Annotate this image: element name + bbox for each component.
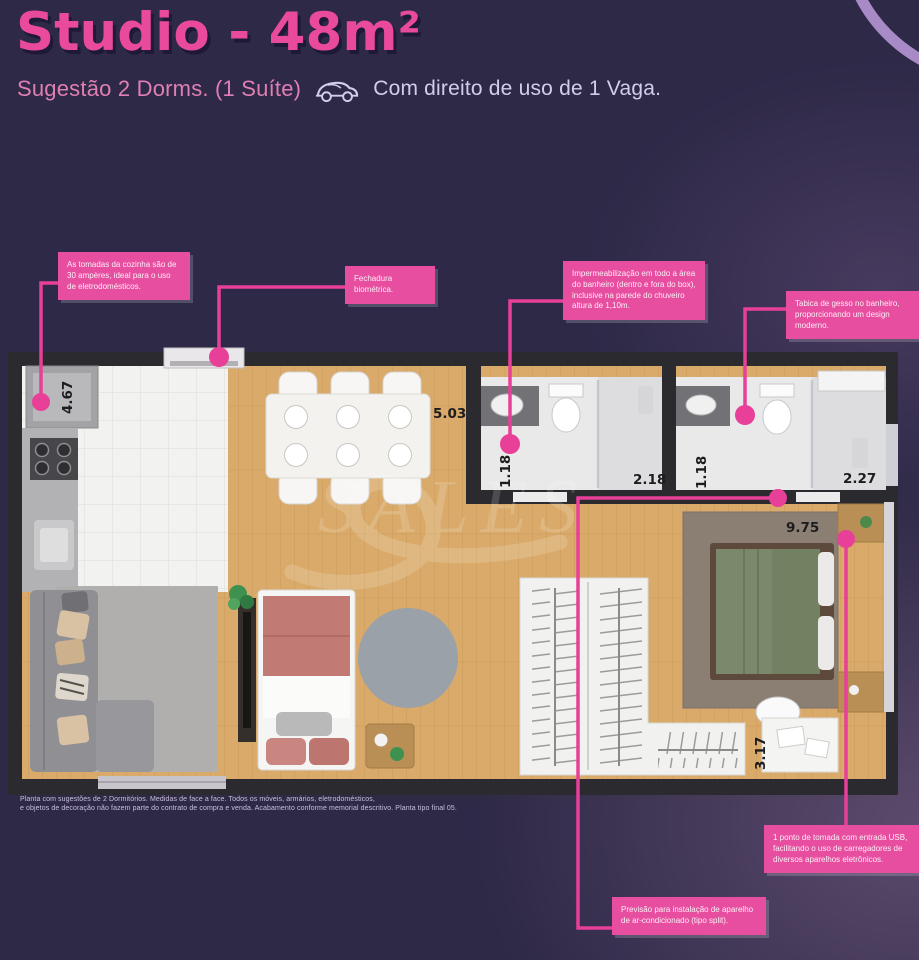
bed-pillow bbox=[309, 738, 349, 765]
sofa-pillow bbox=[56, 714, 89, 745]
dim-bedroom: 9.75 bbox=[786, 520, 819, 536]
round-rug bbox=[358, 608, 458, 708]
side-table bbox=[366, 724, 414, 768]
svg-text:SALES: SALES bbox=[318, 465, 589, 549]
sofa-pillow bbox=[55, 673, 89, 702]
connector-dot bbox=[837, 530, 855, 548]
sofa-chaise bbox=[96, 700, 154, 772]
bathroom2-shower bbox=[852, 438, 868, 468]
studio-floorplan-page: Studio - 48m² Sugestão 2 Dorms. (1 Suíte… bbox=[0, 0, 919, 960]
bathroom2-door bbox=[796, 492, 840, 502]
dim-living: 5.03 bbox=[433, 406, 466, 422]
bed-cushion bbox=[276, 712, 332, 736]
living-room bbox=[30, 586, 218, 772]
disclaimer-line2: e objetos de decoração não fazem parte d… bbox=[20, 805, 580, 814]
dim-bath2-width: 1.18 bbox=[694, 456, 710, 489]
connector-dot bbox=[209, 347, 229, 367]
entrance-door bbox=[164, 348, 244, 368]
connector-dot bbox=[735, 405, 755, 425]
connector-dot bbox=[32, 393, 50, 411]
bed-pillow bbox=[818, 552, 834, 606]
bathroom1-toilet bbox=[549, 384, 583, 397]
stove bbox=[30, 438, 78, 480]
connector-dot bbox=[500, 434, 520, 454]
callout-plaster-molding: Tabica de gesso no banheiro, proporciona… bbox=[786, 291, 919, 339]
bed-pillow bbox=[818, 616, 834, 670]
connector-dot bbox=[769, 489, 787, 507]
bathroom1-shower bbox=[638, 386, 653, 414]
shower-window bbox=[886, 424, 898, 486]
dim-bath1-length: 2.18 bbox=[633, 472, 666, 488]
bathroom2-shelf bbox=[818, 371, 885, 391]
bed-pillow bbox=[266, 738, 306, 765]
floor-plan: SALES 4.67 5.03 1.18 2.18 1.18 2.27 9.75… bbox=[0, 0, 919, 960]
callout-air-conditioning: Previsão para instalação de aparelho de … bbox=[612, 897, 766, 935]
callout-biometric-lock: Fechadura biométrica. bbox=[345, 266, 435, 304]
callout-waterproofing: Impermeabilização em todo a área do banh… bbox=[563, 261, 705, 320]
dim-bath2-length: 2.27 bbox=[843, 471, 876, 487]
curtain-strip bbox=[884, 502, 894, 712]
dim-closet: 3.17 bbox=[753, 737, 769, 770]
callout-usb-outlet: 1 ponto de tomada com entrada USB, facil… bbox=[764, 825, 919, 873]
bathroom2-toilet bbox=[760, 384, 794, 397]
sofa-pillow bbox=[56, 610, 90, 641]
disclaimer-line1: Planta com sugestões de 2 Dormitórios. M… bbox=[20, 796, 580, 805]
connector-biometric-lock bbox=[219, 287, 345, 357]
dim-kitchen: 4.67 bbox=[60, 381, 76, 414]
dim-bath1-width: 1.18 bbox=[498, 455, 514, 488]
sofa-pillow bbox=[54, 638, 85, 666]
disclaimer: Planta com sugestões de 2 Dormitórios. M… bbox=[20, 796, 580, 813]
callout-kitchen-outlets: As tomadas da cozinha são de 30 ampères,… bbox=[58, 252, 190, 300]
